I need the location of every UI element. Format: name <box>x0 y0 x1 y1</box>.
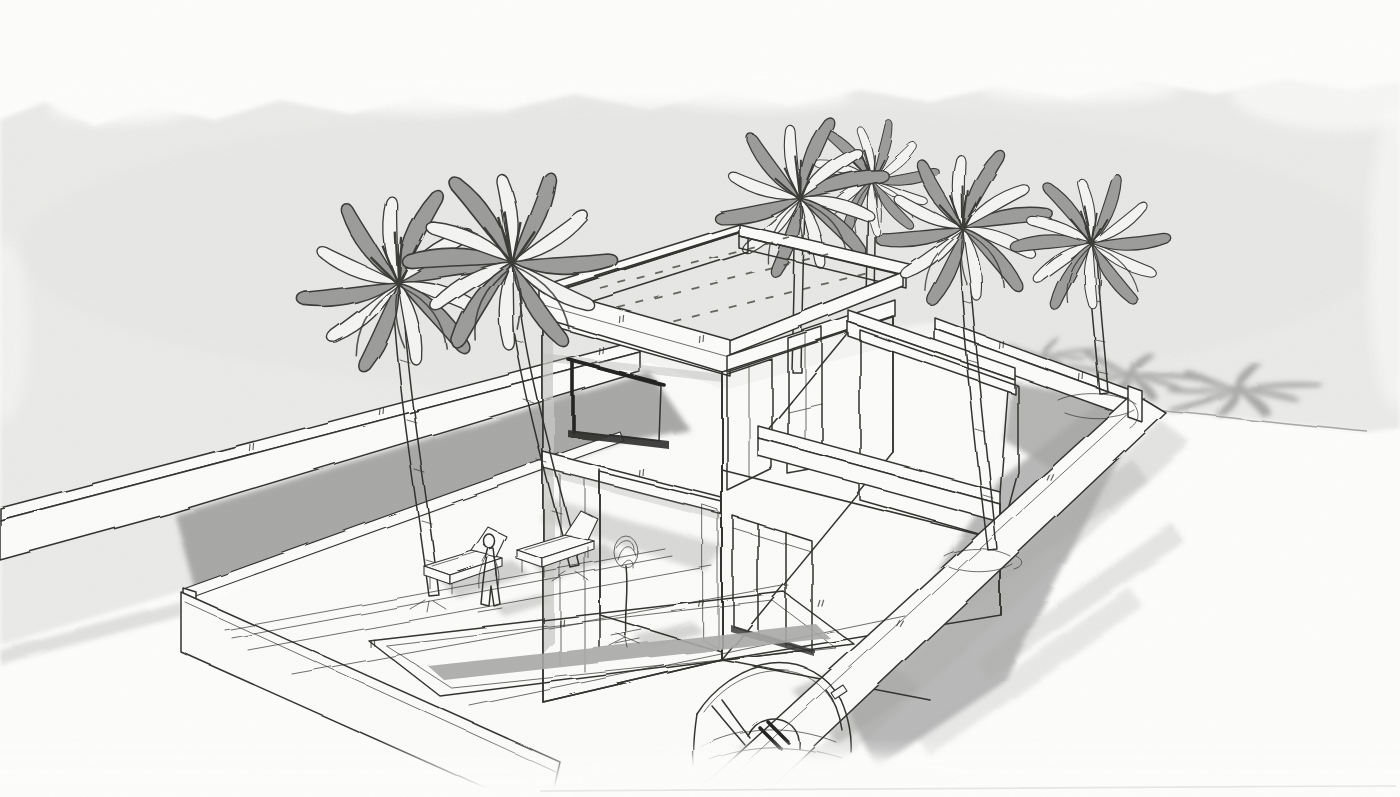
architectural-sketch-canvas <box>0 0 1400 797</box>
paper-grain-texture <box>0 0 1400 797</box>
